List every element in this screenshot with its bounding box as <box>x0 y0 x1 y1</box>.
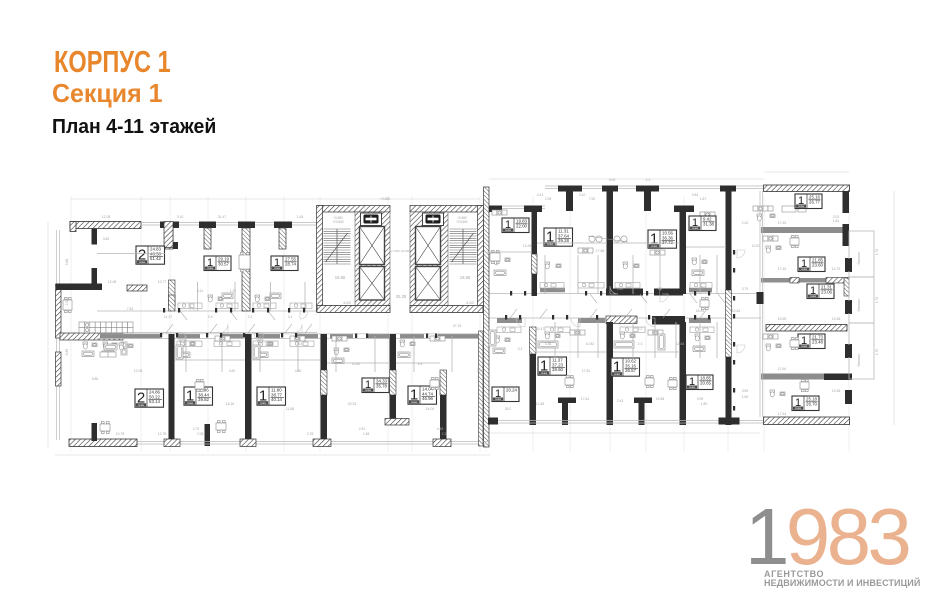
svg-text:3.38: 3.38 <box>545 342 552 346</box>
svg-text:2.39: 2.39 <box>545 197 552 201</box>
svg-text:3.3: 3.3 <box>208 315 213 319</box>
svg-text:51.42: 51.42 <box>150 256 162 261</box>
svg-text:12.64: 12.64 <box>732 309 741 313</box>
svg-text:3.99: 3.99 <box>697 397 704 401</box>
svg-text:35.2: 35.2 <box>505 407 512 411</box>
svg-text:13.28: 13.28 <box>523 244 532 248</box>
svg-text:2.2: 2.2 <box>442 432 447 436</box>
svg-text:22.00: 22.00 <box>516 223 528 228</box>
svg-text:15.88: 15.88 <box>656 397 665 401</box>
svg-text:10.87: 10.87 <box>752 244 761 248</box>
svg-text:12.08: 12.08 <box>108 280 117 284</box>
svg-text:2.81: 2.81 <box>267 342 274 346</box>
svg-text:14.04: 14.04 <box>426 407 435 411</box>
svg-text:18.45: 18.45 <box>696 309 705 313</box>
svg-text:23.60: 23.60 <box>812 262 824 267</box>
svg-text:28.74: 28.74 <box>285 261 297 266</box>
svg-text:этаж: этаж <box>495 398 501 401</box>
svg-text:12.08: 12.08 <box>134 369 143 373</box>
svg-text:11.47: 11.47 <box>164 315 172 319</box>
svg-text:2.20: 2.20 <box>742 221 749 225</box>
svg-text:3.59: 3.59 <box>742 389 749 393</box>
svg-text:31.38: 31.38 <box>703 221 715 226</box>
svg-text:1.31: 1.31 <box>230 289 237 293</box>
svg-text:13.48: 13.48 <box>832 317 841 321</box>
svg-text:4.41: 4.41 <box>537 193 544 197</box>
svg-text:3.68: 3.68 <box>65 259 69 266</box>
svg-text:10.82: 10.82 <box>352 362 361 366</box>
svg-text:47.19: 47.19 <box>453 324 462 328</box>
svg-text:+0.650: +0.650 <box>380 197 391 201</box>
svg-text:10.78: 10.78 <box>116 432 125 436</box>
svg-text:20.33: 20.33 <box>348 402 357 406</box>
svg-text:25.35: 25.35 <box>396 294 407 299</box>
svg-text:этаж: этаж <box>541 372 547 375</box>
svg-text:40.14: 40.14 <box>271 397 283 402</box>
svg-text:3.10: 3.10 <box>177 215 184 219</box>
svg-text:2.3: 2.3 <box>638 342 643 346</box>
svg-text:35.78: 35.78 <box>376 383 388 388</box>
svg-text:17.45: 17.45 <box>778 221 787 225</box>
svg-text:2.78: 2.78 <box>307 432 314 436</box>
svg-text:балкон: балкон <box>856 299 861 312</box>
svg-text:33.47: 33.47 <box>536 327 545 331</box>
svg-text:12.08: 12.08 <box>102 215 111 219</box>
svg-text:9.67: 9.67 <box>697 287 704 291</box>
svg-text:этаж: этаж <box>692 227 698 230</box>
svg-text:17.45: 17.45 <box>778 267 787 271</box>
svg-text:2.2: 2.2 <box>248 315 253 319</box>
svg-text:12.78: 12.78 <box>158 432 167 436</box>
svg-text:4.80: 4.80 <box>617 287 624 291</box>
svg-text:4.4: 4.4 <box>418 362 423 366</box>
svg-text:18.31: 18.31 <box>556 287 565 291</box>
svg-text:39.82: 39.82 <box>198 397 210 402</box>
svg-text:3.79: 3.79 <box>742 287 749 291</box>
svg-text:этаж: этаж <box>274 267 280 270</box>
svg-text:26.70: 26.70 <box>806 401 818 406</box>
svg-text:1.70: 1.70 <box>875 349 879 355</box>
svg-text:этаж: этаж <box>260 402 266 405</box>
svg-text:23.06: 23.06 <box>821 289 833 294</box>
svg-text:26.77: 26.77 <box>809 199 821 204</box>
svg-text:12.64: 12.64 <box>778 367 787 371</box>
svg-text:20.24: 20.24 <box>506 387 518 392</box>
svg-text:3.10: 3.10 <box>579 193 586 197</box>
svg-text:12.64: 12.64 <box>676 342 685 346</box>
svg-text:4.45: 4.45 <box>437 427 444 431</box>
svg-text:1.87: 1.87 <box>700 197 707 201</box>
svg-text:2.81: 2.81 <box>359 427 366 431</box>
svg-text:3.84: 3.84 <box>692 193 699 197</box>
svg-text:+23.650: +23.650 <box>332 220 344 224</box>
svg-text:этаж: этаж <box>207 267 213 270</box>
svg-text:этаж: этаж <box>365 389 371 392</box>
svg-text:30.57: 30.57 <box>218 261 230 266</box>
svg-text:1.48: 1.48 <box>363 432 370 436</box>
svg-text:этаж: этаж <box>801 268 807 271</box>
svg-text:1.80: 1.80 <box>701 402 708 406</box>
svg-text:балкон: балкон <box>856 252 861 265</box>
svg-text:17.86: 17.86 <box>596 249 605 253</box>
svg-text:7.83: 7.83 <box>127 307 134 311</box>
svg-text:4.11: 4.11 <box>197 289 203 293</box>
svg-text:3.1: 3.1 <box>288 315 293 319</box>
svg-text:23.48: 23.48 <box>812 339 824 344</box>
svg-text:4.62: 4.62 <box>466 300 475 305</box>
svg-text:этаж: этаж <box>187 402 193 405</box>
svg-text:1.81: 1.81 <box>833 219 840 223</box>
svg-text:3.1: 3.1 <box>518 347 523 351</box>
svg-text:этаж: этаж <box>795 407 801 410</box>
svg-text:4.62: 4.62 <box>343 300 352 305</box>
svg-text:5.85: 5.85 <box>65 349 69 356</box>
svg-text:этаж: этаж <box>139 261 145 264</box>
svg-text:53.14: 53.14 <box>149 399 161 404</box>
svg-text:этаж: этаж <box>798 205 804 208</box>
svg-text:39.28: 39.28 <box>558 238 570 243</box>
svg-text:20.65: 20.65 <box>700 380 712 385</box>
svg-text:18.16: 18.16 <box>226 402 235 406</box>
svg-text:2.2: 2.2 <box>646 178 651 182</box>
svg-text:11.88: 11.88 <box>536 402 544 406</box>
svg-text:4.80: 4.80 <box>295 369 302 373</box>
svg-text:3.84: 3.84 <box>103 237 110 241</box>
svg-text:этаж: этаж <box>810 295 816 298</box>
svg-text:17.81: 17.81 <box>581 397 590 401</box>
svg-text:2.50: 2.50 <box>65 299 69 306</box>
svg-text:этаж: этаж <box>689 386 695 389</box>
svg-text:4.82: 4.82 <box>229 369 236 373</box>
svg-text:46.96: 46.96 <box>422 396 434 401</box>
svg-text:3.09: 3.09 <box>609 178 616 182</box>
svg-text:2.43: 2.43 <box>617 399 624 403</box>
svg-text:16.66: 16.66 <box>460 275 471 280</box>
svg-text:этаж: этаж <box>505 229 511 232</box>
svg-text:30.2: 30.2 <box>477 369 484 373</box>
svg-text:этаж: этаж <box>614 373 620 376</box>
svg-text:1.80: 1.80 <box>742 395 749 399</box>
svg-text:7.08: 7.08 <box>197 432 204 436</box>
svg-text:этаж: этаж <box>801 345 807 348</box>
svg-text:16.66: 16.66 <box>335 275 346 280</box>
svg-text:этаж: этаж <box>411 401 417 404</box>
svg-text:2.2: 2.2 <box>638 327 643 331</box>
svg-text:7.52: 7.52 <box>589 197 596 201</box>
svg-text:+7.460 +8.090: +7.460 +8.090 <box>390 249 410 253</box>
svg-text:15.55: 15.55 <box>778 317 787 321</box>
svg-text:31.47: 31.47 <box>218 215 227 219</box>
svg-text:2.79: 2.79 <box>193 427 200 431</box>
svg-text:1.70: 1.70 <box>875 297 879 303</box>
svg-text:10.77: 10.77 <box>158 280 167 284</box>
svg-text:1.70: 1.70 <box>875 249 879 255</box>
svg-text:этаж: этаж <box>138 404 144 407</box>
svg-text:этаж: этаж <box>651 245 657 248</box>
svg-text:14.79: 14.79 <box>832 267 841 271</box>
svg-text:балкон: балкон <box>856 354 861 367</box>
svg-text:11.88: 11.88 <box>286 407 294 411</box>
svg-text:36.57: 36.57 <box>625 368 637 373</box>
svg-text:17.81: 17.81 <box>582 369 591 373</box>
svg-text:1.65: 1.65 <box>297 215 304 219</box>
svg-text:+23.650: +23.650 <box>456 220 468 224</box>
svg-text:13.48: 13.48 <box>832 389 841 393</box>
svg-text:3.3: 3.3 <box>658 287 663 291</box>
svg-text:5.85: 5.85 <box>92 377 99 381</box>
svg-text:38.60: 38.60 <box>552 367 564 372</box>
svg-text:10.82: 10.82 <box>586 342 595 346</box>
svg-text:3.8: 3.8 <box>298 342 303 346</box>
svg-text:17.44: 17.44 <box>778 412 787 416</box>
